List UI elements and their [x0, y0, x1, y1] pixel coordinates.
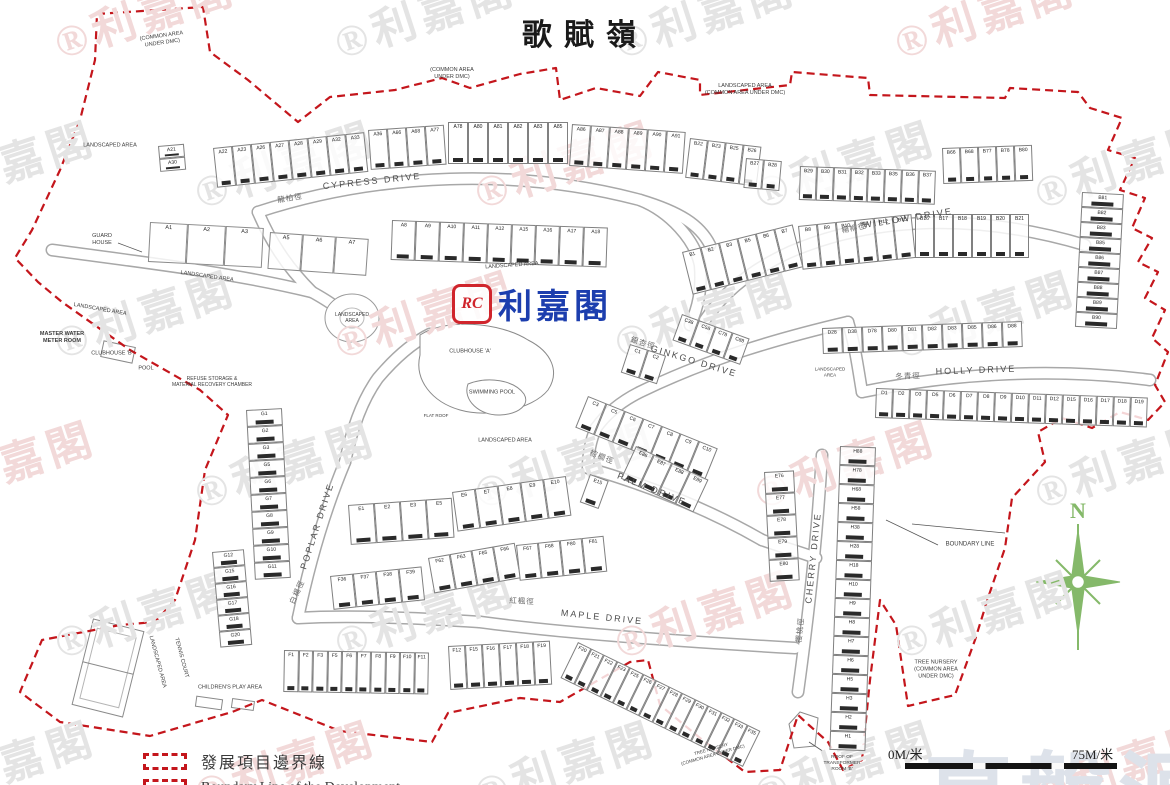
street-label-zh-palm-drive: 棕櫚徑	[588, 447, 616, 467]
scale-bar-max-label: 75M/米	[1072, 744, 1113, 763]
street-label-maple-drive: MAPLE DRIVE	[560, 608, 643, 627]
street-label-cypress-drive: CYPRESS DRIVE	[322, 171, 422, 191]
street-label-ginkgo-drive: GINKGO DRIVE	[649, 343, 738, 379]
ricacorp-logo-icon: RC	[452, 284, 492, 324]
legend-boundary-label-zh: 發展項目邊界線	[201, 749, 327, 773]
street-label-poplar-drive: POPLAR DRIVE	[298, 481, 335, 570]
street-label-zh-maple-drive: 紅楓徑	[509, 595, 535, 607]
street-label-zh-ginkgo-drive: 銀杏徑	[629, 334, 657, 352]
scale-bar	[905, 763, 1117, 769]
street-label-palm-drive: PALM DRIVE	[616, 471, 688, 508]
street-label-zh-willow-drive: 楊柳徑	[840, 220, 867, 236]
page-title: 歌賦嶺	[522, 10, 648, 54]
legend-boundary-en: Boundary Line of the Development	[143, 779, 400, 785]
street-label-zh-poplar-drive: 白楊徑	[287, 578, 308, 606]
street-label-holly-drive: HOLLY DRIVE	[935, 364, 1016, 377]
site-plan-map: N ®利嘉閣®利嘉閣®利嘉閣®利嘉閣®利嘉閣®利嘉閣®利嘉閣®利嘉閣®利嘉閣®利…	[0, 0, 1170, 785]
boundary-dash-icon-en	[143, 779, 187, 785]
boundary-dash-icon	[143, 753, 187, 770]
legend-boundary-zh: 發展項目邊界線	[143, 749, 327, 773]
street-label-zh-cypress-drive: 龍柏徑	[277, 191, 304, 206]
legend-boundary-label-en: Boundary Line of the Development	[201, 780, 400, 785]
street-label-cherry-drive: CHERRY DRIVE	[803, 512, 823, 604]
street-label-willow-drive: WILLOW DRIVE	[863, 206, 954, 230]
street-label-zh-cherry-drive: 櫻桃徑	[793, 617, 807, 644]
ricacorp-logo: RC 利嘉閣	[452, 279, 612, 328]
scale-bar-min-label: 0M/米	[888, 744, 923, 763]
ricacorp-logo-text: 利嘉閣	[498, 279, 612, 328]
street-label-zh-holly-drive: 冬青徑	[895, 370, 921, 382]
street-names-layer: CYPRESS DRIVE龍柏徑WILLOW DRIVE楊柳徑GINKGO DR…	[0, 0, 1170, 785]
